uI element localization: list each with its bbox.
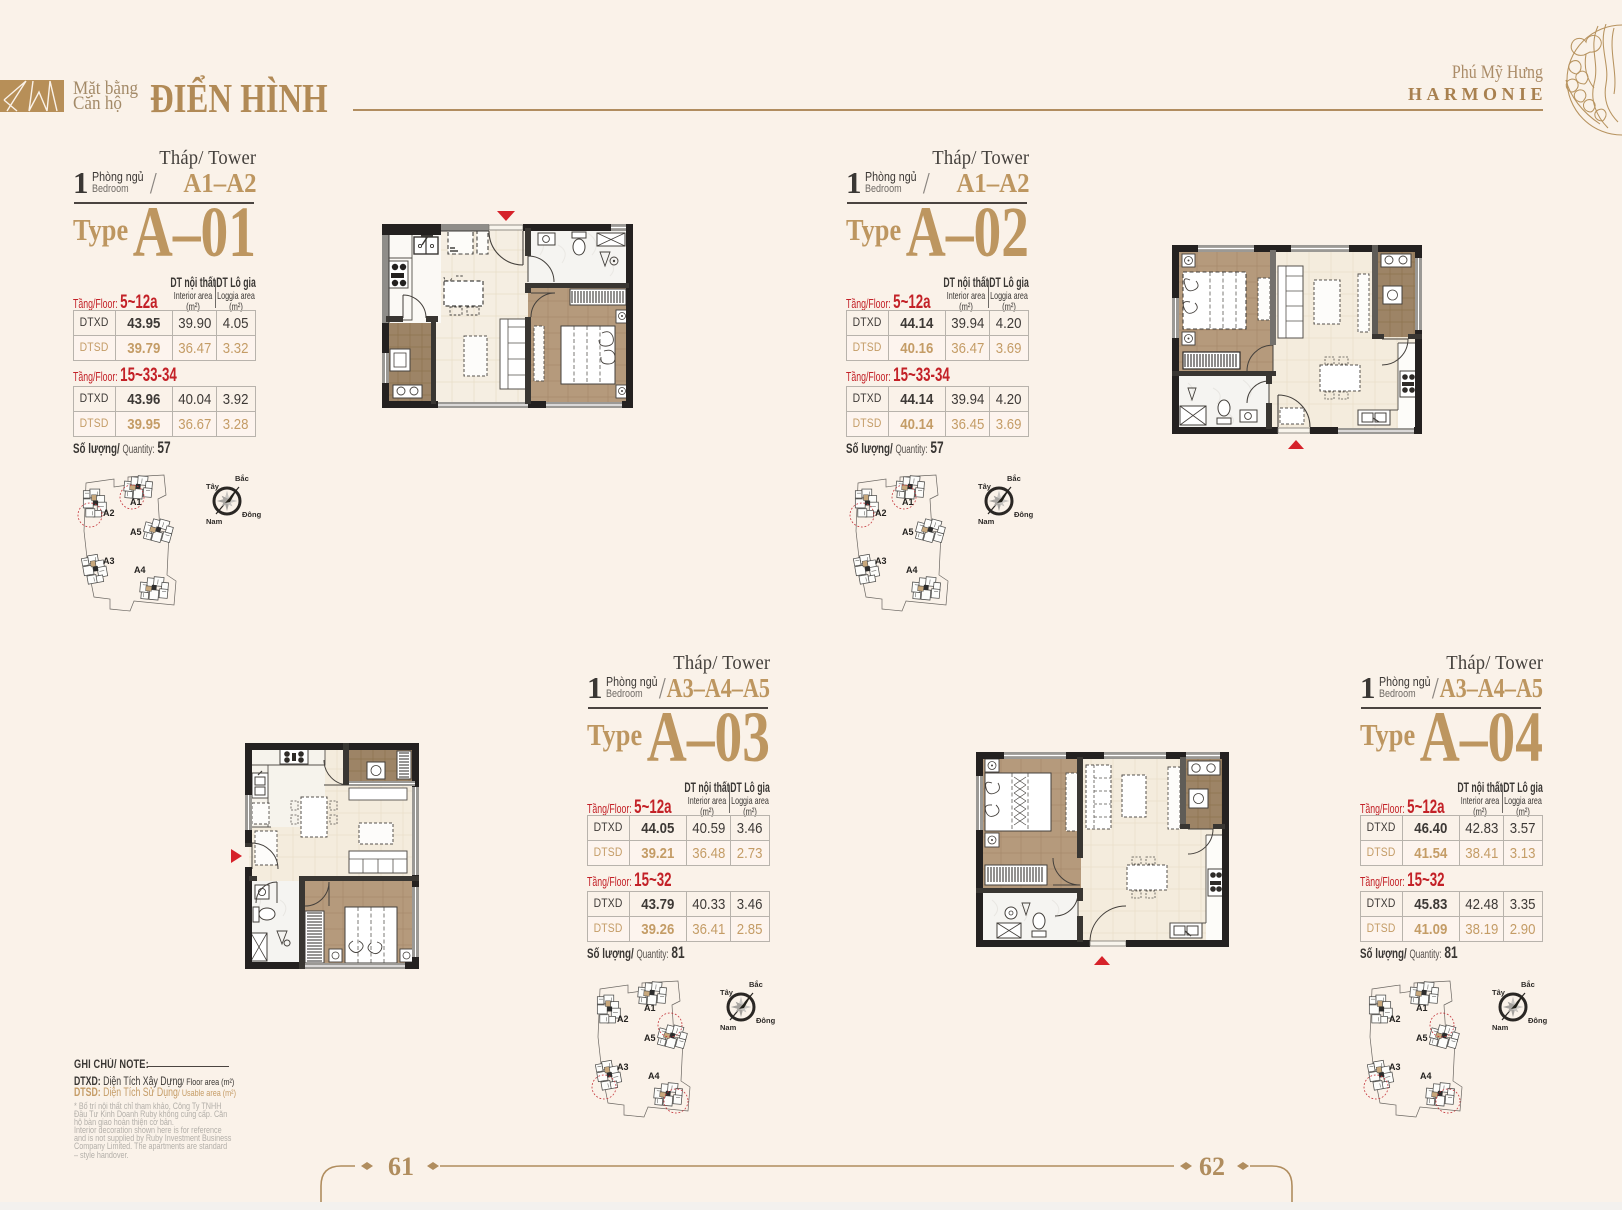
- svg-text:A2: A2: [1389, 1014, 1401, 1024]
- svg-text:A4: A4: [134, 565, 146, 575]
- svg-text:Bắc: Bắc: [749, 980, 763, 989]
- svg-text:A2: A2: [617, 1014, 629, 1024]
- svg-text:Nam: Nam: [1492, 1023, 1509, 1032]
- svg-text:A3: A3: [103, 556, 115, 566]
- svg-text:Tây: Tây: [978, 482, 992, 491]
- svg-text:Tây: Tây: [206, 482, 220, 491]
- svg-text:A3: A3: [617, 1062, 629, 1072]
- svg-text:A3: A3: [1389, 1062, 1401, 1072]
- svg-text:Nam: Nam: [720, 1023, 737, 1032]
- svg-text:A4: A4: [648, 1071, 660, 1081]
- svg-text:Nam: Nam: [978, 517, 995, 526]
- svg-text:Bắc: Bắc: [1521, 980, 1535, 989]
- svg-text:A5: A5: [902, 527, 914, 537]
- svg-text:A3: A3: [875, 556, 887, 566]
- svg-text:A2: A2: [103, 508, 115, 518]
- svg-text:Đông: Đông: [242, 510, 262, 519]
- svg-text:A1: A1: [644, 1003, 656, 1013]
- svg-text:Tây: Tây: [1492, 988, 1506, 997]
- svg-text:A2: A2: [875, 508, 887, 518]
- svg-text:Đông: Đông: [756, 1016, 776, 1025]
- svg-text:Bắc: Bắc: [235, 474, 249, 483]
- svg-text:A1: A1: [1416, 1003, 1428, 1013]
- svg-text:Nam: Nam: [206, 517, 223, 526]
- svg-text:Đông: Đông: [1014, 510, 1034, 519]
- svg-text:A1: A1: [130, 497, 142, 507]
- svg-text:A5: A5: [130, 527, 142, 537]
- svg-text:Đông: Đông: [1528, 1016, 1548, 1025]
- svg-text:A4: A4: [1420, 1071, 1432, 1081]
- svg-text:A4: A4: [906, 565, 918, 575]
- svg-text:Bắc: Bắc: [1007, 474, 1021, 483]
- svg-text:A1: A1: [902, 497, 914, 507]
- svg-text:A5: A5: [1416, 1033, 1428, 1043]
- svg-text:Tây: Tây: [720, 988, 734, 997]
- svg-text:A5: A5: [644, 1033, 656, 1043]
